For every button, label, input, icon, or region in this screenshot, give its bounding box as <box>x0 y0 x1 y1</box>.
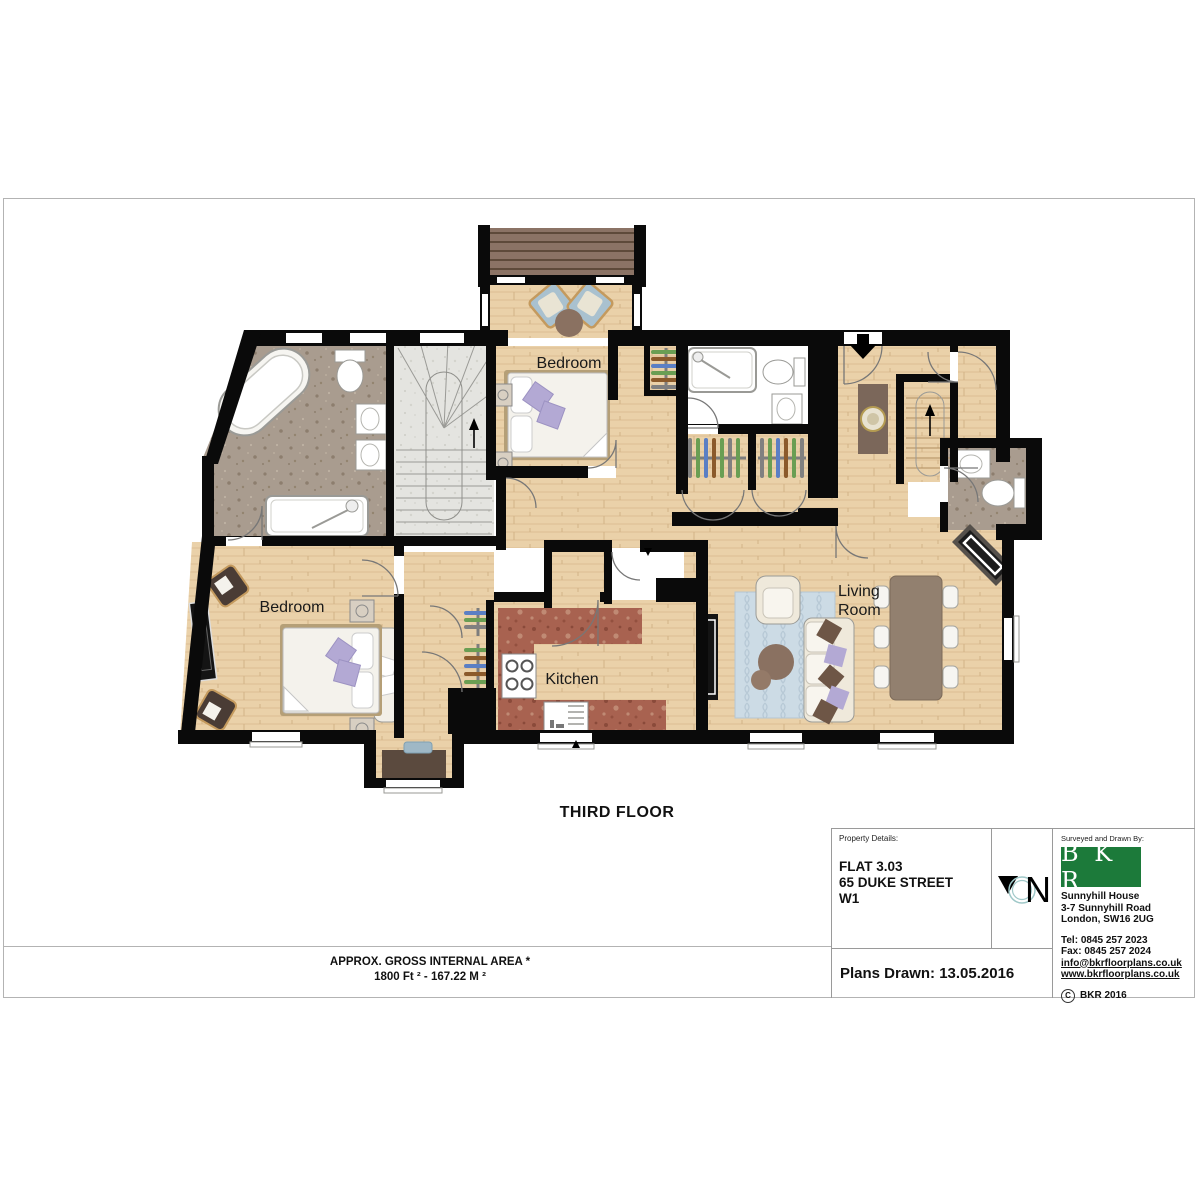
bkr-logo: B K R <box>1061 847 1141 887</box>
side-table <box>751 670 771 690</box>
shower-room-fixtures <box>688 348 805 424</box>
website-line: www.bkrfloorplans.co.uk <box>1061 969 1187 981</box>
basin <box>772 394 802 424</box>
compass-cell: N <box>991 828 1052 948</box>
area-note: APPROX. GROSS INTERNAL AREA * 1800 Ft ² … <box>40 955 820 985</box>
console-table <box>858 384 888 454</box>
sofa <box>804 618 854 725</box>
speaker <box>494 384 512 406</box>
compass-letter: N <box>1025 869 1051 910</box>
plans-drawn-text: Plans Drawn: 13.05.2016 <box>840 965 1014 982</box>
basin <box>356 440 386 470</box>
desk-chair <box>404 742 432 753</box>
address-line3: London, SW16 2UG <box>1061 914 1187 926</box>
floor-title: THIRD FLOOR <box>452 804 782 822</box>
address-line2: 3-7 Sunnyhill Road <box>1061 903 1187 915</box>
basin <box>356 404 386 434</box>
copyright-line: C BKR 2016 <box>1061 989 1187 1003</box>
balcony-deck <box>484 228 640 278</box>
round-table <box>555 309 583 337</box>
floor-plan-drawing: Bedroom Bedroom Kitchen Living Room <box>0 0 1200 1200</box>
address-line1: Sunnyhill House <box>1061 891 1187 903</box>
area-note-line2: 1800 Ft ² - 167.22 M ² <box>40 970 820 985</box>
property-details-cell: Property Details: FLAT 3.03 65 DUKE STRE… <box>831 828 991 948</box>
armchair <box>756 576 800 624</box>
fax-line: Fax: 0845 257 2024 <box>1061 946 1187 958</box>
room-label-bedroom-top: Bedroom <box>537 355 602 372</box>
email-line: info@bkrfloorplans.co.uk <box>1061 958 1187 970</box>
toilet <box>335 350 365 392</box>
tel-line: Tel: 0845 257 2023 <box>1061 935 1187 947</box>
room-label-living-1: Living <box>838 583 880 600</box>
surveyor-cell: Surveyed and Drawn By: B K R Sunnyhill H… <box>1052 828 1195 998</box>
dining-table <box>890 576 942 700</box>
kitchen-corridor-floor <box>548 548 606 604</box>
copyright-text: BKR 2016 <box>1080 990 1127 1001</box>
speaker <box>350 600 374 622</box>
copyright-icon: C <box>1061 989 1075 1003</box>
property-line1: FLAT 3.03 <box>839 859 983 875</box>
area-note-line1: APPROX. GROSS INTERNAL AREA * <box>40 955 820 970</box>
shower-tray <box>266 496 368 536</box>
sink <box>544 702 588 732</box>
hob <box>502 654 536 698</box>
desk <box>382 750 446 778</box>
hallway-floor <box>496 470 696 548</box>
floorplan-sheet: Bedroom Bedroom Kitchen Living Room THIR… <box>0 0 1200 1200</box>
north-compass-icon: N <box>992 828 1053 948</box>
property-details-label: Property Details: <box>839 834 983 843</box>
room-label-kitchen: Kitchen <box>545 671 598 688</box>
toilet <box>982 478 1025 508</box>
room-label-bedroom-left: Bedroom <box>260 599 325 616</box>
property-line2: 65 DUKE STREET <box>839 875 983 891</box>
communal-stairs-floor <box>392 338 494 542</box>
toilet <box>763 358 805 386</box>
plans-drawn-cell: Plans Drawn: 13.05.2016 <box>831 948 1052 998</box>
room-label-living-2: Room <box>838 602 881 619</box>
bed-top <box>494 370 610 474</box>
property-line3: W1 <box>839 891 983 907</box>
